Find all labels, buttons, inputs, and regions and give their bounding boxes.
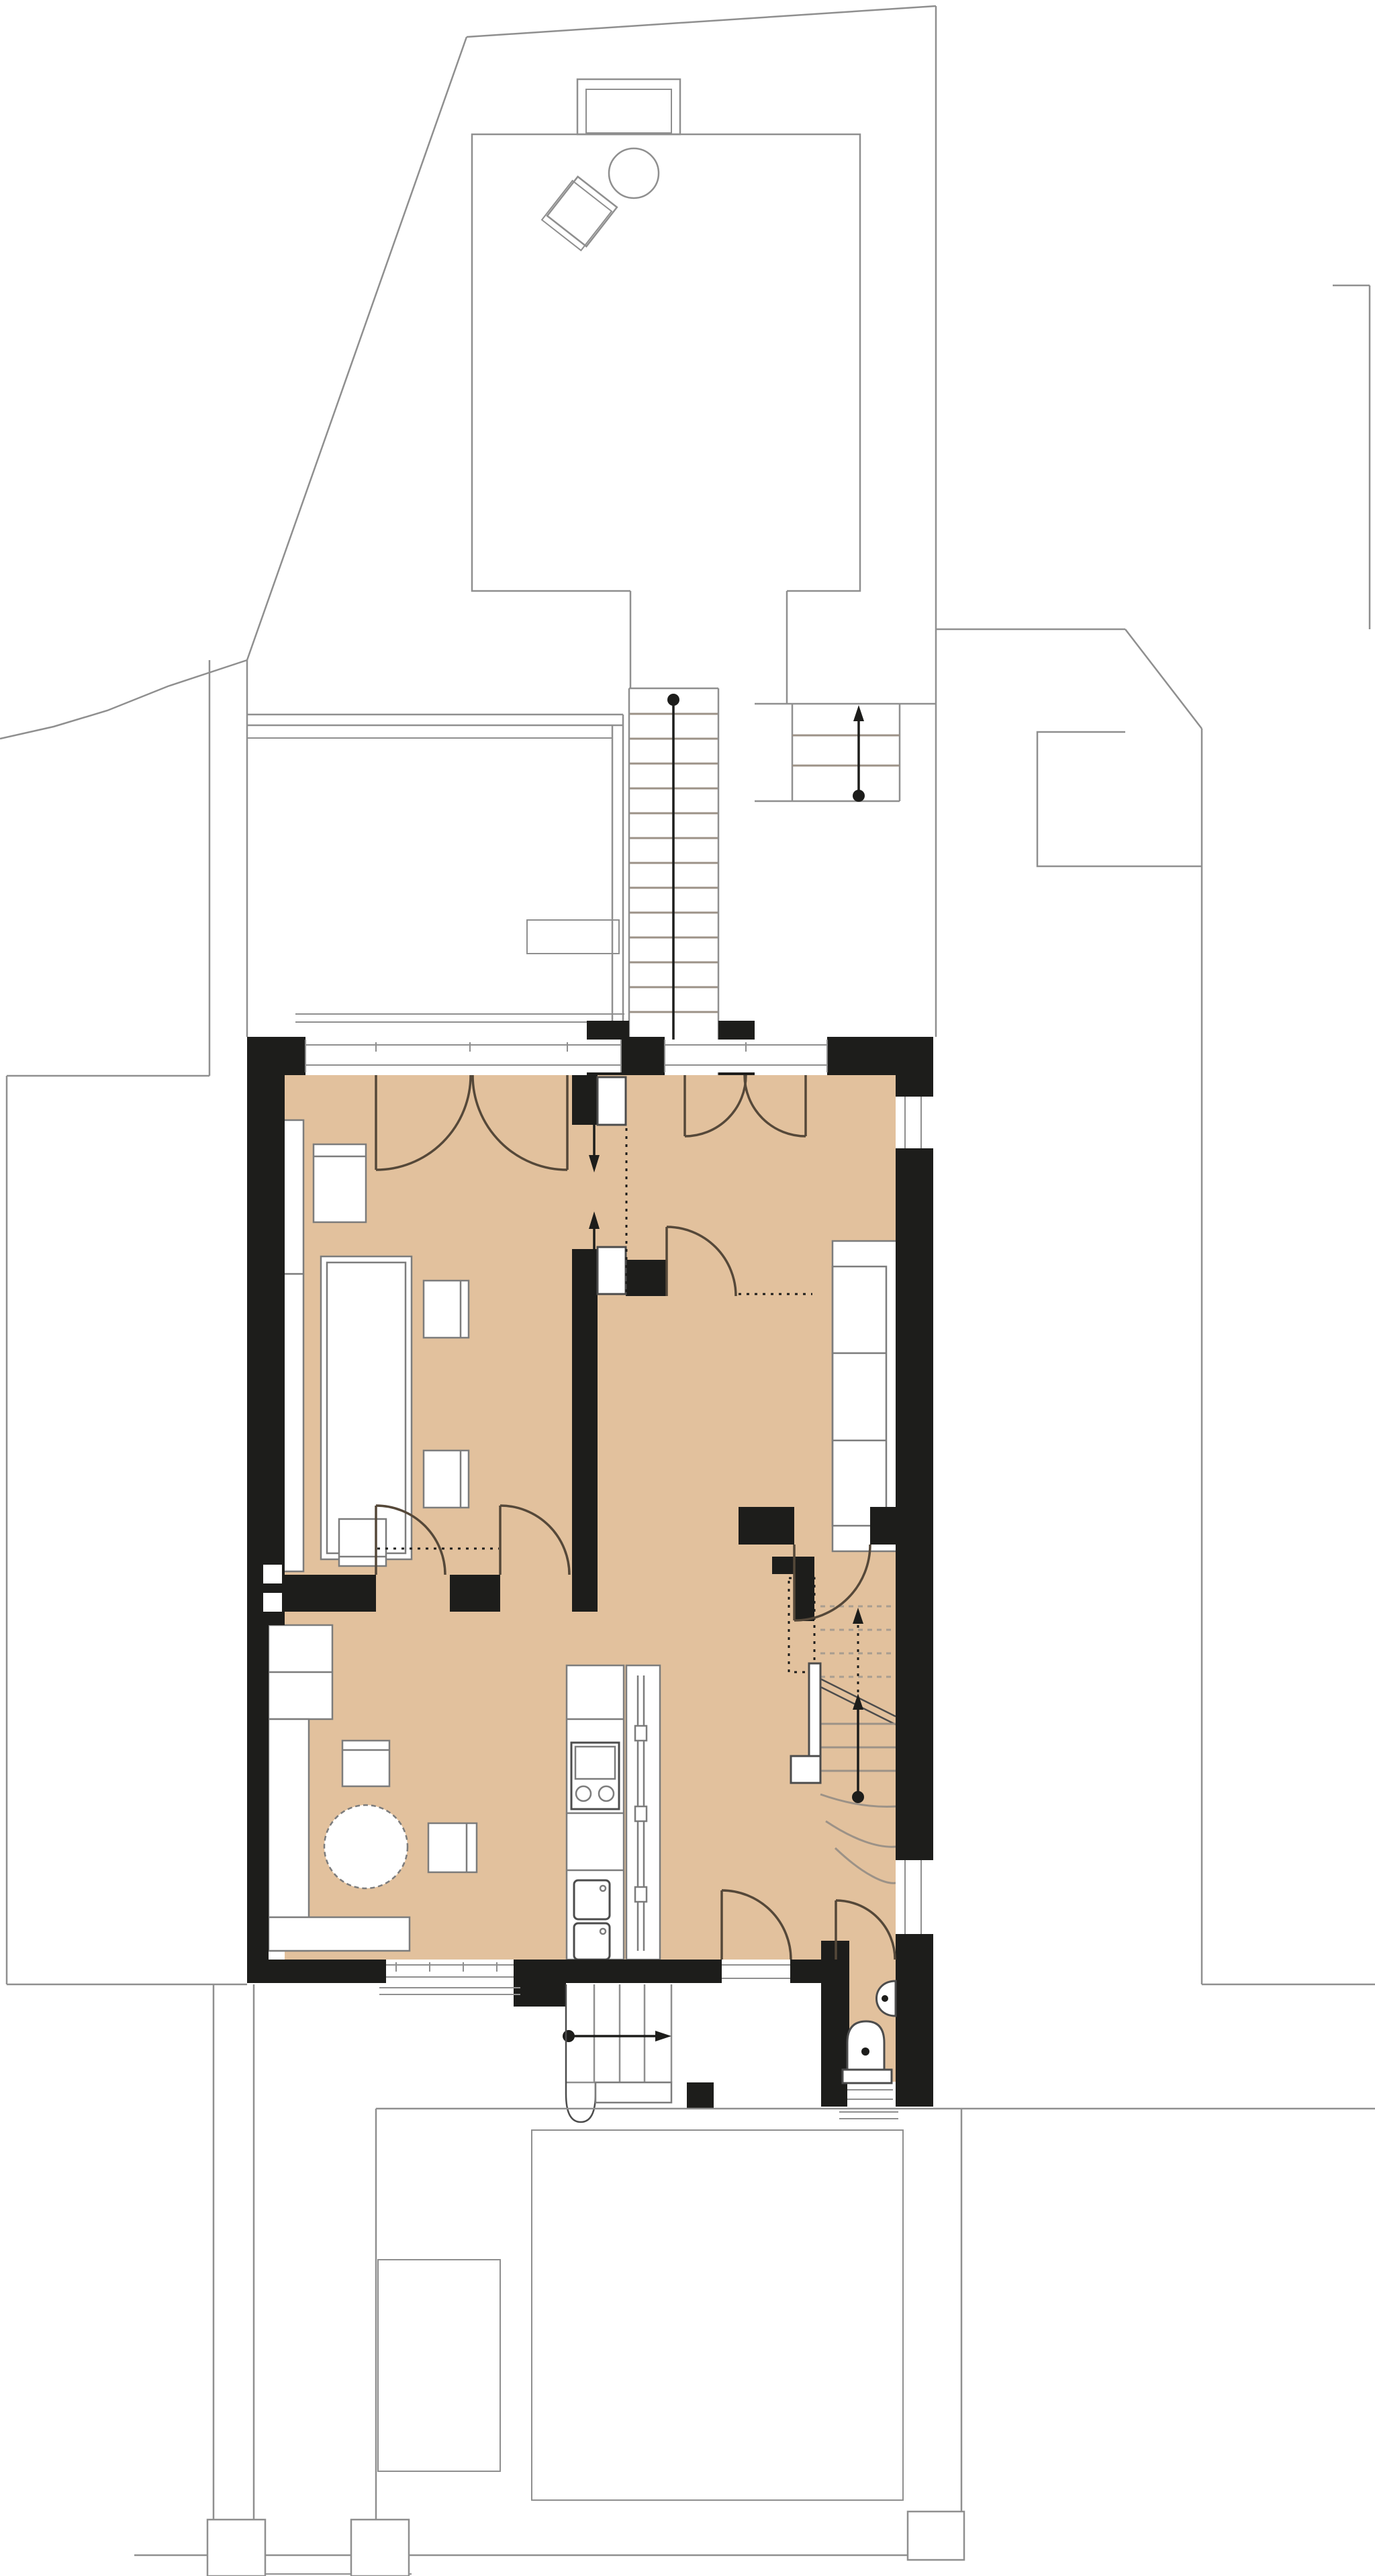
partition-bottom-run (572, 1249, 598, 1612)
toilet-bowl (847, 2021, 884, 2072)
dining-chair-right-2 (424, 1451, 469, 1508)
family-chair-1 (342, 1741, 389, 1786)
right-wall-lower (896, 1934, 933, 2107)
bottom-wall-right-of-window (514, 1960, 553, 1983)
pavilion-bay-window-inner (586, 89, 671, 133)
garden-pavilion (472, 79, 860, 954)
pavilion-outline (472, 134, 860, 591)
family-room-window (386, 1960, 514, 1983)
bottom-wall-left (247, 1960, 386, 1983)
bottom-wall-jog (514, 1983, 566, 2007)
side-steps-arrow-head (853, 705, 864, 721)
wash-basin-drain (882, 1995, 888, 2002)
entry-ledge (596, 2082, 671, 2103)
mid-wall-segment-2 (450, 1575, 500, 1612)
bench-bottom (269, 1917, 410, 1951)
garden-table (609, 148, 659, 198)
top-wall-center-pier (621, 1037, 665, 1075)
fence-post-1 (207, 2520, 265, 2576)
front-wall-left-of-door (553, 1960, 722, 1983)
right-wall-middle (896, 1148, 933, 1860)
toilet-cistern (843, 2070, 892, 2083)
floor-plan-drawing (0, 0, 1375, 2576)
dining-table (321, 1256, 412, 1559)
pavilion-bay-window-outer (577, 79, 680, 134)
front-yard (134, 1984, 1375, 2576)
kitchen-screen-joint-1 (635, 1726, 647, 1741)
hall-top-wall-left (739, 1507, 794, 1545)
right-wall-upper (896, 1037, 933, 1097)
mid-wall-segment-3 (574, 1575, 598, 1612)
front-terrace (532, 2130, 903, 2500)
garden-bed (378, 2260, 500, 2471)
sliding-panel-bottom (598, 1247, 626, 1294)
family-room-window-sill (379, 1988, 520, 1994)
right-wall-window-lower (896, 1860, 933, 1934)
garden-side-steps (755, 704, 936, 802)
chimney-flue-1 (263, 1565, 282, 1583)
neighbor-notch (1037, 732, 1202, 866)
dining-chair-bottom (339, 1519, 386, 1566)
hall-top-wall-right (870, 1507, 896, 1545)
site-boundary-top (467, 6, 936, 37)
family-chair-2 (428, 1823, 477, 1872)
toilet-drain (861, 2048, 869, 2056)
right-wall-window-upper (896, 1097, 933, 1148)
wc-window (847, 2082, 893, 2107)
kitchen-screen-joint-2 (635, 1806, 647, 1821)
sliding-panel-top (598, 1077, 626, 1125)
curved-entry-wall (566, 1984, 596, 2122)
fence-post-2 (351, 2520, 409, 2576)
entrance-arrow-head (655, 2031, 671, 2041)
front-door-threshold (722, 1960, 790, 1983)
garden-chair-edge (542, 181, 612, 250)
garden-chair (547, 177, 617, 246)
fence-post-3 (908, 2512, 964, 2560)
kitchen (567, 1665, 660, 1960)
bench-left (269, 1719, 309, 1951)
neighbor-diagonal (1125, 629, 1202, 729)
floor-plan-canvas (0, 0, 1375, 2576)
stair-landing-block (791, 1756, 820, 1783)
left-wall-lower (247, 1625, 269, 1983)
wc-bottom-wall-segment (836, 2082, 847, 2107)
chimney-flue-2 (263, 1593, 282, 1612)
entrance (563, 1984, 671, 2122)
entrance-pier (687, 2082, 714, 2109)
site-boundary-diagonal (247, 37, 467, 660)
stair-l-wall-vertical (794, 1574, 814, 1621)
left-wall-upper (247, 1037, 285, 1558)
round-table (324, 1805, 408, 1888)
partition-door-stub (626, 1260, 667, 1296)
dining-chair-right-1 (424, 1281, 469, 1338)
mid-wall-segment-1 (285, 1575, 376, 1612)
wc-window-sill (839, 2112, 898, 2119)
terrace-door-mat (527, 920, 619, 954)
kitchen-screen-joint-3 (635, 1887, 647, 1902)
rear-terrace (247, 660, 624, 1037)
